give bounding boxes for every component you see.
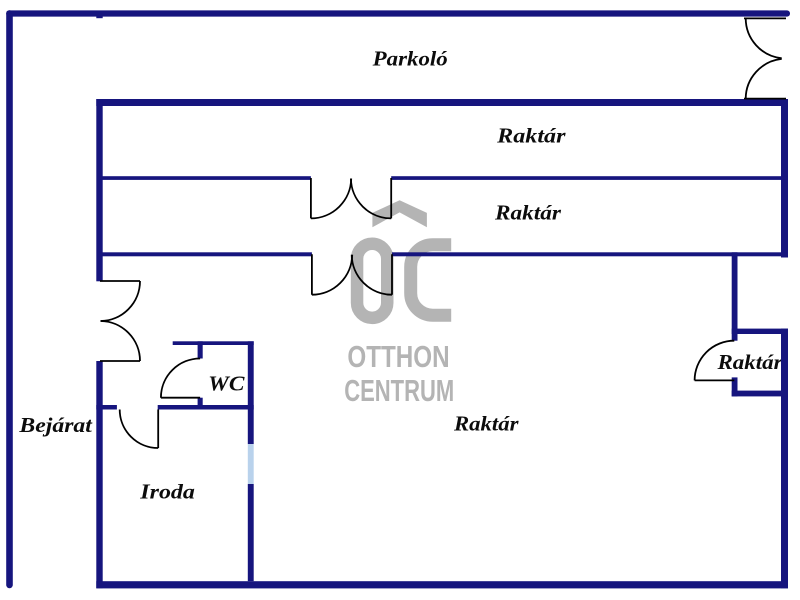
svg-text:OTTHON: OTTHON (347, 339, 449, 374)
svg-text:WC: WC (208, 372, 245, 396)
svg-text:Raktár: Raktár (453, 412, 519, 436)
svg-text:Iroda: Iroda (139, 480, 195, 504)
svg-text:Raktár: Raktár (494, 201, 562, 225)
svg-text:Bejárat: Bejárat (18, 413, 93, 437)
svg-text:CENTRUM: CENTRUM (344, 373, 454, 408)
svg-text:Parkoló: Parkoló (372, 47, 448, 71)
svg-text:Raktár: Raktár (716, 350, 783, 374)
svg-text:Raktár: Raktár (496, 124, 566, 148)
